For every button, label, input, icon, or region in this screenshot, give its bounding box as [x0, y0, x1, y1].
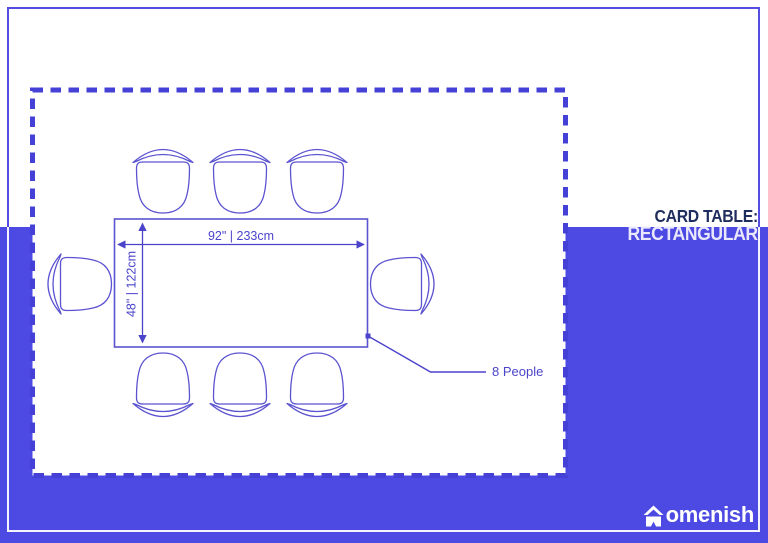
table-height-label: 48" | 122cm	[126, 251, 139, 317]
capacity-label: 8 People	[492, 365, 543, 378]
poster-title-line2: RECTANGULAR	[628, 223, 758, 246]
chair-top-2	[210, 150, 270, 214]
blue-band	[0, 227, 768, 543]
chair-top-1	[133, 150, 193, 214]
brand-logo: omenish	[643, 502, 754, 528]
table-width-label: 92" | 233cm	[171, 230, 311, 243]
chair-top-3	[287, 150, 347, 214]
brand-wordmark: omenish	[666, 502, 754, 528]
house-icon	[643, 503, 664, 527]
poster: 92" | 233cm 48" | 122cm 8 People CARD TA…	[0, 0, 768, 543]
